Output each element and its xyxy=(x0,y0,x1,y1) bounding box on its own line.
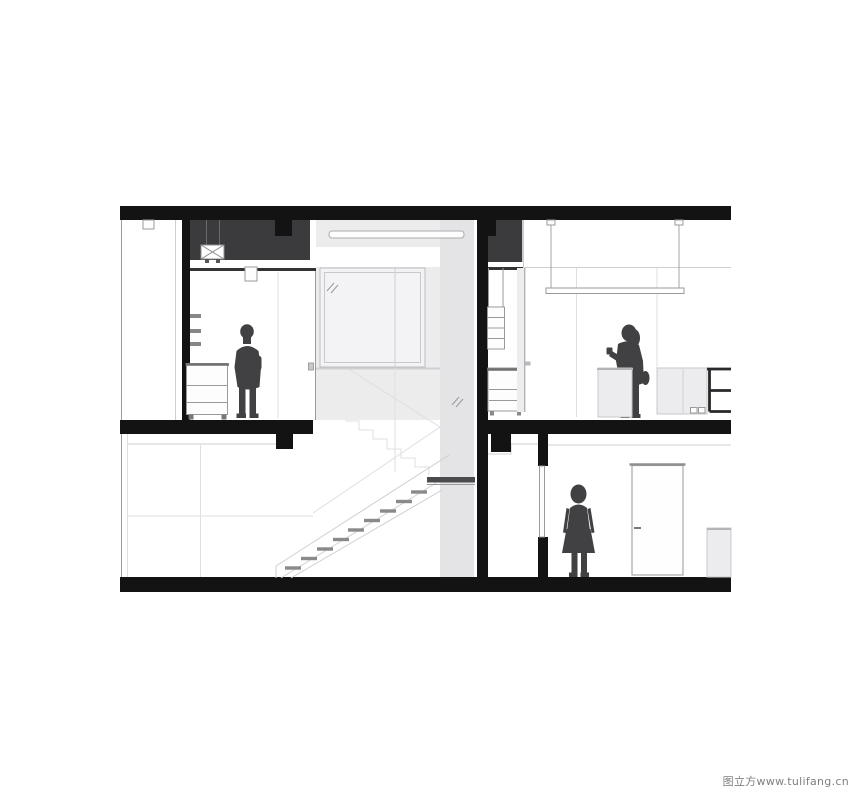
alcove-door xyxy=(517,268,531,412)
mid-slab-right xyxy=(477,420,731,434)
interior-door xyxy=(630,465,686,576)
mid-slab-left xyxy=(120,420,313,434)
upper-flight-faint xyxy=(313,421,443,513)
loft-notch-right xyxy=(488,218,496,236)
linear-light-fixture xyxy=(329,231,464,238)
ground-slab xyxy=(120,577,731,592)
room-lower-right xyxy=(562,465,731,578)
lower-wall-below-door xyxy=(538,537,548,577)
sectioned-door-leaf xyxy=(540,466,545,537)
kitchen-upper-right xyxy=(487,220,731,418)
low-cabinet-right xyxy=(707,528,731,577)
woman-silhouette-lower xyxy=(562,485,595,578)
stair-treads xyxy=(285,492,427,568)
roof-slab xyxy=(120,206,731,220)
beam-left xyxy=(276,434,293,449)
stairwell-glass-shaft xyxy=(316,220,474,577)
stair-landing xyxy=(427,477,475,483)
watermark-text: 图立方www.tulifang.cn xyxy=(723,773,849,789)
pendant-box xyxy=(245,267,257,281)
suspended-light xyxy=(546,220,684,294)
kitchen-island xyxy=(597,368,633,417)
shaft-wall xyxy=(477,218,488,577)
loft-ladder xyxy=(488,268,505,349)
kitchen-cabinet xyxy=(657,368,707,414)
beam-right xyxy=(491,434,511,452)
lower-wall-above-door xyxy=(538,434,548,466)
open-shelf-unit xyxy=(707,369,731,412)
drawer-nightstand xyxy=(186,364,230,420)
man-silhouette xyxy=(235,324,262,418)
loft-notch-left xyxy=(275,218,292,236)
ceiling-fixture-box xyxy=(143,220,154,229)
loft-void-left xyxy=(190,218,316,271)
wall-shelves xyxy=(190,314,201,346)
section-drawing xyxy=(0,0,860,799)
door-handle xyxy=(309,363,314,370)
